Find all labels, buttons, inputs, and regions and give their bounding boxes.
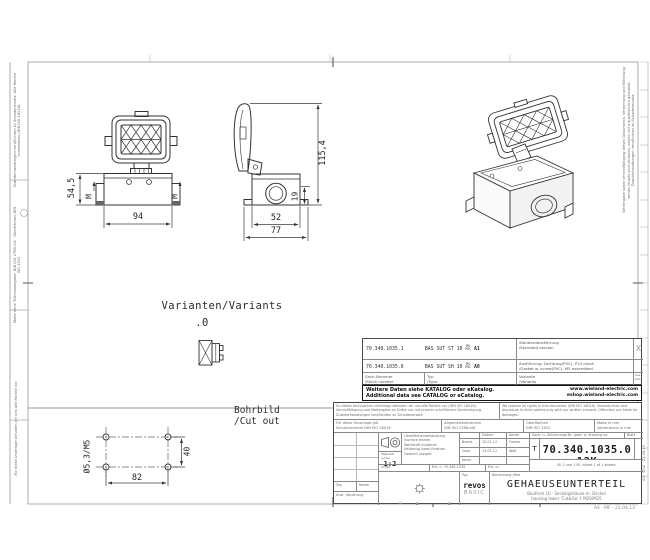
margin-note-left-1: Zuwiderhandlungen verpflichten zu Schade… <box>13 65 21 195</box>
protection-note-cell: Für diese Unterlage giltSchutzvermerk DI… <box>334 419 441 432</box>
variant-selected-mark: X <box>633 339 643 359</box>
variants-row: 70.340.1035.0 BAS SUT SH 10 MSMIC A0 <box>363 359 516 372</box>
divider <box>499 403 500 419</box>
variant-stock-number: 70.340.1035.0 <box>366 365 422 371</box>
website-link: www.wieland-electric.com <box>570 387 638 392</box>
title-cell: Benennung /title GEHAEUSEUNTERTEIL Baufo… <box>489 471 643 505</box>
approval-row-label: Norm <box>459 456 479 464</box>
approval-row-date <box>479 456 506 464</box>
variant-type-fraction: MSMIC <box>465 345 471 352</box>
approval-row-name: Franke <box>506 438 529 447</box>
part-subtitle-en: housing lower 'Cut&Go' f. M20/M25 <box>490 496 643 501</box>
variant-type-fraction: MSMIC <box>465 363 471 370</box>
brand-cell: wieland ® eingetragenes Warenzeichen /re… <box>378 471 459 505</box>
units-cell: Maße in mm/dimensions in mm <box>594 419 643 432</box>
sheet-count-cell: Bl. 1 von 1 Bl. /sheet 1 of 1 sheets <box>529 459 643 471</box>
variant-selected-mark <box>633 359 643 372</box>
origin-cell: Urspr. <box>378 464 429 471</box>
eshop-link: eshop.wieland-electric.com <box>567 393 638 398</box>
first-angle-projection-icon <box>380 435 401 450</box>
dim-cutout-width: 82 <box>125 473 149 483</box>
approval-row-label: Gepr. <box>459 447 479 456</box>
legal-note-de: Zu dieser technischen Unterlage behalten… <box>336 404 497 418</box>
projection-symbol-cell <box>378 432 401 451</box>
tolerance-cell: AllgemeintoleranzenDIN ISO 2768-mK <box>441 419 523 432</box>
dim-side-inner-width: 52 <box>264 213 288 223</box>
variant-stock-number: 70.340.1035.1 <box>366 347 422 353</box>
dim-cutout-hole-spec: Ø5,3/M5 <box>83 433 92 479</box>
series-cell: Typ revos BASIC <box>459 471 489 505</box>
col-header-type: Typ/Type <box>424 372 516 386</box>
variant-type: BAS SUT SH 10 <box>425 365 463 370</box>
variants-table: 70.340.1035.1 BAS SUT ST 10 MSMIC A1 Sta… <box>362 338 642 385</box>
catalog-notice-en: Additional data see CATALOG or eCatalog. <box>366 393 484 399</box>
sheet-footer-note: A4 · MF · 23.04.13 <box>545 506 635 511</box>
series-line: BASIC <box>460 490 489 496</box>
surface-cell: OberflächenDIN ISO 1302 <box>523 419 594 432</box>
dim-side-height: 115,4 <box>318 136 328 170</box>
legal-note-en: We reserve all rights in this document (… <box>502 404 640 418</box>
approval-row-name <box>506 456 529 464</box>
revision-zust-cell: Zust. /Änderung <box>334 491 378 505</box>
dim-front-thread-left: M <box>85 190 94 204</box>
replaced-by-cell: Ers. d.: <box>485 464 529 471</box>
series-name: revos <box>460 481 489 490</box>
revision-strip <box>334 432 378 481</box>
replaces-cell: Ers. f.: 70.340.1035 <box>429 464 485 471</box>
docno-side-cell <box>634 438 643 459</box>
margin-note-right-copyright: Weitergabe sowie Vervielfältigung dieses… <box>622 65 632 215</box>
dim-front-thread-right: M <box>171 190 180 204</box>
variant-code: A1 <box>474 347 480 352</box>
dim-front-width: 94 <box>126 212 150 222</box>
material-cell: Oberflächenbehandlung /surface treatm. W… <box>401 432 459 464</box>
col-header-stock: Sach-Nummer/Stock number <box>363 372 424 386</box>
margin-note-left-2: Maße ohne Toleranzangabe: DIN ISO 2768-m… <box>13 205 21 325</box>
front-view <box>96 112 180 206</box>
dim-side-outer-width: 77 <box>264 226 288 236</box>
dimension-lines <box>76 104 322 487</box>
approval-row-label: Bearb. <box>459 438 479 447</box>
approval-row-name: Wolf <box>506 447 529 456</box>
cutout-view <box>96 427 178 477</box>
variants-value: .0 <box>147 317 257 329</box>
drawing-sheet: 54,5 M M 94 115,4 19 52 77 82 40 Ø5,3/M5… <box>0 0 650 560</box>
cutout-heading-line2: /Cut out <box>234 416 280 427</box>
part-title: GEHAEUSEUNTERTEIL <box>490 479 643 490</box>
variant-description: Ausführung: Dichtung(PVC), P14 mont./Gas… <box>516 359 633 372</box>
revision-tag-header: Tag <box>334 481 356 491</box>
approval-row-date: 13.01.12 <box>479 447 506 456</box>
variants-row: 70.340.1035.1 BAS SUT ST 10 MSMIC A1 <box>363 339 516 359</box>
iso-view <box>466 89 574 228</box>
margin-note-left-3: Für diese Unterlage behalten wir uns all… <box>14 373 18 483</box>
brand-wordmark: wieland <box>385 500 454 505</box>
dim-side-foot: 19 <box>291 190 300 204</box>
variant-code: A0 <box>474 365 480 370</box>
cutout-heading-line1: Bohrbild <box>234 405 280 416</box>
approval-row-date: 12.01.12 <box>479 438 506 447</box>
dim-front-height: 54,5 <box>67 173 77 203</box>
variant-description: Standardausführung/Standard version <box>516 339 633 359</box>
wieland-logo-icon <box>414 483 425 494</box>
drawing-number: 70.340.1035.0 13K <box>539 438 634 459</box>
col-header-variant: Variante/Variants <box>516 372 633 386</box>
variant-type: BAS SUT ST 10 <box>425 347 463 352</box>
revision-name-header: Name <box>356 481 378 491</box>
catalog-notice-box: Weitere Daten siehe KATALOG oder eKatalo… <box>362 385 642 401</box>
variant-icon <box>199 341 223 366</box>
catalog-notice-de: Weitere Daten siehe KATALOG oder eKatalo… <box>366 387 494 393</box>
col-header-selection: Aus-wahl <box>633 372 643 386</box>
variants-heading: Varianten/Variants <box>147 300 297 312</box>
title-block: Zu dieser technischen Unterlage behalten… <box>333 402 642 504</box>
doc-type-letter: T <box>529 438 539 459</box>
dim-cutout-height: 40 <box>183 445 192 459</box>
